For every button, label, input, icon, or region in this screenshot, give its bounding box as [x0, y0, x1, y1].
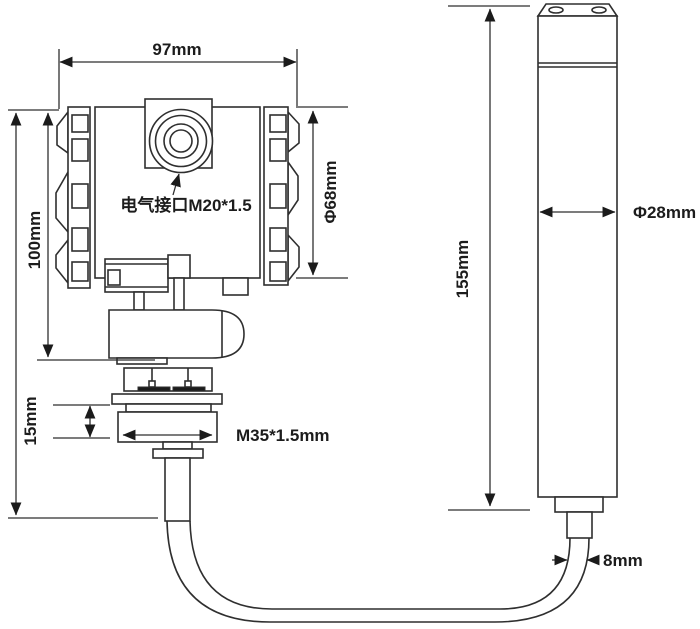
flange-plate — [112, 394, 222, 404]
dim-label-100mm: 100mm — [25, 211, 44, 270]
side-tabs-right — [288, 112, 299, 281]
gasket-bar — [173, 387, 205, 391]
probe-assembly — [538, 4, 617, 538]
gasket-bar — [138, 387, 170, 391]
bracket-post — [174, 278, 184, 310]
dim-body-diameter-68: Φ68mm — [296, 107, 348, 278]
cable-stem — [165, 458, 190, 521]
boss-neck — [163, 442, 192, 449]
housing-step-right — [223, 278, 248, 295]
drawing-canvas: 97mm 100mm 15mm Φ68mm M35*1.5mm 155mm Φ2… — [0, 0, 700, 629]
tab-shape — [56, 240, 68, 283]
connector-hole — [170, 130, 192, 152]
fin — [270, 115, 286, 132]
fin — [72, 228, 88, 251]
tab-shape — [288, 235, 299, 281]
dim-label-m35: M35*1.5mm — [236, 426, 330, 445]
process-connection — [112, 394, 222, 521]
dim-label-155mm: 155mm — [453, 240, 472, 299]
dim-label-15mm: 15mm — [21, 396, 40, 445]
fin — [72, 139, 88, 161]
transmitter-assembly — [56, 99, 299, 521]
fin — [72, 262, 88, 281]
electrical-connector — [145, 99, 213, 173]
rounded-valve-body — [109, 310, 244, 364]
bracket-slot — [108, 270, 120, 285]
dim-probe-length-155: 155mm — [448, 6, 530, 510]
cap-hole — [549, 7, 563, 13]
dim-thread-height-15: 15mm — [21, 396, 110, 445]
fin — [72, 184, 88, 208]
probe-end-step — [555, 497, 603, 512]
technical-drawing-svg: 97mm 100mm 15mm Φ68mm M35*1.5mm 155mm Φ2… — [0, 0, 700, 629]
probe-tube — [538, 16, 617, 497]
tab-shape — [288, 162, 298, 215]
probe-cable-nose — [567, 512, 592, 538]
connection-cable — [167, 521, 589, 622]
dim-label-97mm: 97mm — [152, 40, 201, 59]
bracket-support — [134, 292, 144, 310]
cooling-fins-left — [68, 107, 90, 288]
fin — [72, 115, 88, 132]
nut-pin — [149, 381, 155, 387]
fin — [270, 228, 286, 251]
fin — [270, 184, 286, 208]
tab-shape — [56, 172, 68, 232]
tab-shape — [57, 112, 68, 153]
valve-body-step — [117, 358, 167, 364]
electrical-interface-text: 电气接口M20*1.5 — [120, 195, 251, 215]
nut-pin — [185, 381, 191, 387]
tab-shape — [288, 112, 299, 152]
side-tabs-left — [56, 112, 68, 283]
dim-label-phi28mm: Φ28mm — [633, 203, 696, 222]
dim-label-phi68mm: Φ68mm — [321, 160, 340, 223]
valve-body-outline — [109, 310, 244, 358]
thread-boss — [118, 412, 217, 442]
cap-hole — [592, 7, 606, 13]
spacer-ring — [126, 404, 211, 412]
boss-collar — [153, 449, 203, 458]
fin — [270, 139, 286, 161]
mounting-nut — [124, 368, 212, 391]
cooling-fins-right — [264, 107, 288, 285]
fin — [270, 262, 286, 281]
bracket-block — [168, 255, 190, 278]
cable-inner-edge — [190, 521, 570, 609]
dim-label-8mm: 8mm — [603, 551, 643, 570]
